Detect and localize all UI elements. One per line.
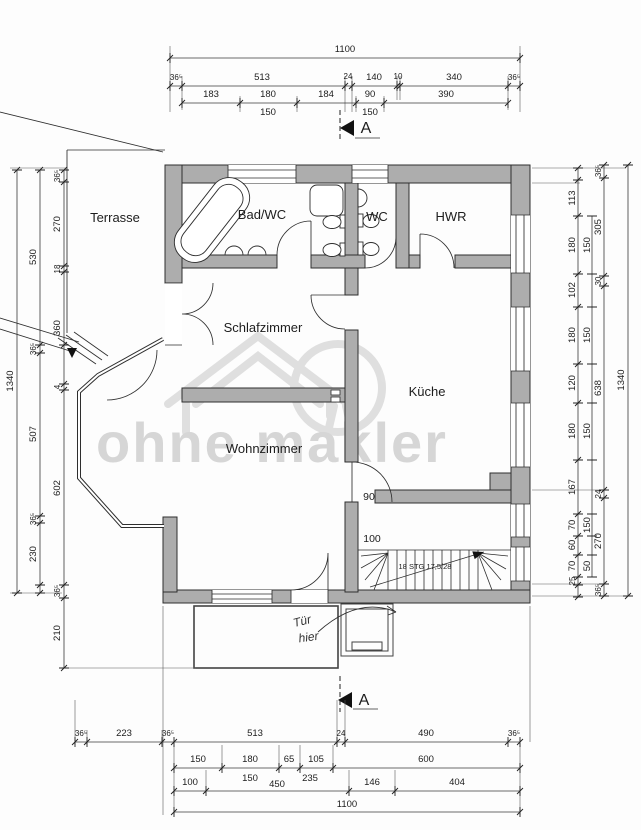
wall-schlafzimmer-bottom xyxy=(182,388,345,402)
garden-steps xyxy=(58,332,108,364)
dim-label: 513 xyxy=(254,72,270,83)
dim-label: 184 xyxy=(318,89,334,100)
extension-lines-right xyxy=(532,168,626,596)
dim-label: 223 xyxy=(116,728,132,739)
handwritten-note-line1: Tür xyxy=(292,612,314,630)
dim-label: 150 xyxy=(260,107,276,118)
window-kueche-2 xyxy=(511,403,530,467)
dim-label: 10 xyxy=(394,72,403,81)
door-width-label: 90 xyxy=(363,491,375,503)
room-label-terrasse: Terrasse xyxy=(90,210,140,225)
dim-label: 270 xyxy=(52,216,63,232)
dim-label: 638 xyxy=(593,380,604,396)
washbasins-icon xyxy=(225,246,266,255)
dim-label: 1100 xyxy=(335,44,355,55)
wall-hwr-bottom-b xyxy=(455,255,511,268)
dim-label: 36⁵ xyxy=(594,165,603,177)
dim-label: 70 xyxy=(567,520,578,531)
electrical-box-icon xyxy=(331,397,340,402)
window-kueche-1 xyxy=(511,307,530,371)
section-label-top: A xyxy=(361,120,372,137)
dim-label: 360 xyxy=(52,320,63,336)
entry-mat xyxy=(352,642,382,650)
dim-label: 150 xyxy=(582,237,593,253)
dimension-labels-bottom: 36⁵ 223 36⁵ 513 24 490 36⁵ 150 180 65 10… xyxy=(75,728,520,810)
site-lines xyxy=(0,112,165,364)
dim-label: 36⁵ xyxy=(29,343,38,355)
dim-label: 113 xyxy=(567,190,578,205)
dim-label: 4 xyxy=(53,384,62,389)
dim-label: 30 xyxy=(594,276,603,285)
dim-label: 450 xyxy=(269,779,285,790)
door-terrace-french xyxy=(182,283,213,345)
window-wohnzimmer xyxy=(212,590,272,603)
dim-label: 36⁵ xyxy=(53,585,62,597)
door-entrance xyxy=(291,553,328,590)
site-boundary-line xyxy=(0,112,163,152)
dim-label: 36⁵ xyxy=(508,73,520,82)
dim-label: 305 xyxy=(593,219,604,235)
dim-label: 530 xyxy=(28,249,39,265)
dim-label: 36⁵ xyxy=(75,729,87,738)
electrical-box-icon xyxy=(331,390,340,395)
note-arrow xyxy=(318,606,396,632)
floorplan-page: ohne makler xyxy=(0,0,641,830)
bidet-icon xyxy=(323,244,341,257)
dim-label: 60 xyxy=(567,540,578,551)
wall-left-lower xyxy=(163,517,177,592)
dim-label: 24 xyxy=(594,489,603,498)
dim-label: 602 xyxy=(52,480,63,496)
stair-label: 18 STG 17,5/28 xyxy=(399,562,452,571)
dim-label: 146 xyxy=(364,777,380,788)
dim-label: 36⁵ xyxy=(508,729,520,738)
dim-label: 36⁵ xyxy=(170,73,182,82)
dim-label: 150 xyxy=(242,773,258,784)
dim-label: 36⁵ xyxy=(594,584,603,596)
dim-label: 150 xyxy=(582,327,593,343)
staircase: 18 STG 17,5/28 100 xyxy=(358,533,511,590)
dim-label: 90 xyxy=(365,89,376,100)
dim-label: 150 xyxy=(582,517,593,533)
dim-label: 36⁵ xyxy=(53,170,62,182)
window-hwr xyxy=(511,215,530,273)
wall-center-vertical-b xyxy=(345,330,358,462)
door-opening-entrance xyxy=(291,590,328,603)
dim-label: 180 xyxy=(567,327,578,343)
wall-center-vertical-c xyxy=(345,502,358,592)
dim-label: 600 xyxy=(418,754,434,765)
dim-label: 24 xyxy=(344,72,353,81)
wall-kueche-bottom xyxy=(375,490,511,503)
dim-label: 513 xyxy=(247,728,263,739)
dim-label: 1340 xyxy=(5,370,16,391)
dim-label: 167 xyxy=(567,479,578,495)
wall-kueche-corner-block xyxy=(490,473,511,490)
dim-label: 150 xyxy=(362,107,378,118)
doors xyxy=(107,221,454,590)
dim-label: 507 xyxy=(28,426,39,442)
dim-label: 404 xyxy=(449,777,465,788)
porch: Tür hier xyxy=(194,604,396,668)
wc-bidet-icon xyxy=(363,243,379,256)
dim-label: 180 xyxy=(242,754,258,765)
wall-left-upper xyxy=(165,165,182,283)
dim-label: 36⁵ xyxy=(29,513,38,525)
dim-label: 18 xyxy=(53,264,62,273)
terrace-outline xyxy=(67,150,165,333)
wall-bad-bottom-b xyxy=(311,255,365,268)
shower-icon xyxy=(310,185,343,216)
dim-label: 50 xyxy=(582,561,593,572)
dim-label: 1100 xyxy=(337,799,357,810)
dim-label: 105 xyxy=(308,754,324,765)
door-opening-terrace xyxy=(165,283,182,345)
path-arrow-icon xyxy=(67,348,77,358)
dim-label: 180 xyxy=(567,423,578,439)
wc-bidet-tank-icon xyxy=(358,242,363,255)
dim-label: 25 xyxy=(568,576,577,585)
stair-width-label: 100 xyxy=(363,533,381,545)
dim-label: 180 xyxy=(260,89,276,100)
dim-label: 24 xyxy=(337,729,346,738)
dim-label: 65 xyxy=(284,754,295,765)
wall-center-vertical-a xyxy=(345,183,358,295)
dim-label: 340 xyxy=(446,72,462,83)
room-label-wc: WC xyxy=(366,209,388,224)
window-wc xyxy=(352,165,388,183)
room-label-wohnzimmer: Wohnzimmer xyxy=(226,441,303,456)
room-label-schlafzimmer: Schlafzimmer xyxy=(224,320,303,335)
door-schlafzimmer-kueche xyxy=(311,295,345,329)
dim-label: 70 xyxy=(567,561,578,572)
dimension-labels-right: 113 180 102 180 120 180 167 70 60 70 25 … xyxy=(567,165,627,596)
window-stair-1 xyxy=(511,504,530,537)
handwritten-note-line2: hier xyxy=(298,629,321,646)
dim-label: 183 xyxy=(203,89,219,100)
stair-winders-left xyxy=(361,553,388,590)
floorplan-drawing: ohne makler xyxy=(0,0,641,830)
window-stair-2 xyxy=(511,547,530,581)
dimension-labels-left: 1340 530 36⁵ 507 36⁵ 230 36⁵ 270 18 360 … xyxy=(5,170,63,641)
section-label-bottom: A xyxy=(359,692,370,709)
dim-label: 390 xyxy=(438,89,454,100)
door-bad xyxy=(277,221,311,255)
room-label-hwr: HWR xyxy=(435,209,466,224)
dim-label: 100 xyxy=(182,777,198,788)
wall-wc-hwr-divider xyxy=(396,183,409,268)
dim-label: 180 xyxy=(567,237,578,253)
door-hwr xyxy=(420,234,454,268)
dim-label: 270 xyxy=(593,533,604,549)
dim-label: 490 xyxy=(418,728,434,739)
dim-label: 102 xyxy=(567,282,578,298)
room-label-kueche: Küche xyxy=(409,384,446,399)
room-label-bad: Bad/WC xyxy=(238,207,286,222)
toilet-icon xyxy=(323,216,341,229)
dim-label: 150 xyxy=(190,754,206,765)
dim-label: 1340 xyxy=(616,369,627,390)
dim-label: 235 xyxy=(302,773,318,784)
section-arrow-top-icon xyxy=(340,120,354,136)
wc-toilet-tank-icon xyxy=(358,214,363,227)
wall-hwr-bottom-a xyxy=(409,255,420,268)
stair-winders-right xyxy=(478,553,508,590)
wc-sink-icon xyxy=(358,189,367,207)
dim-label: 230 xyxy=(28,546,39,562)
dim-label: 150 xyxy=(582,423,593,439)
dim-label: 120 xyxy=(567,375,578,391)
dim-label: 140 xyxy=(366,72,382,83)
dim-label: 36⁵ xyxy=(162,729,174,738)
dim-label: 210 xyxy=(52,625,63,641)
